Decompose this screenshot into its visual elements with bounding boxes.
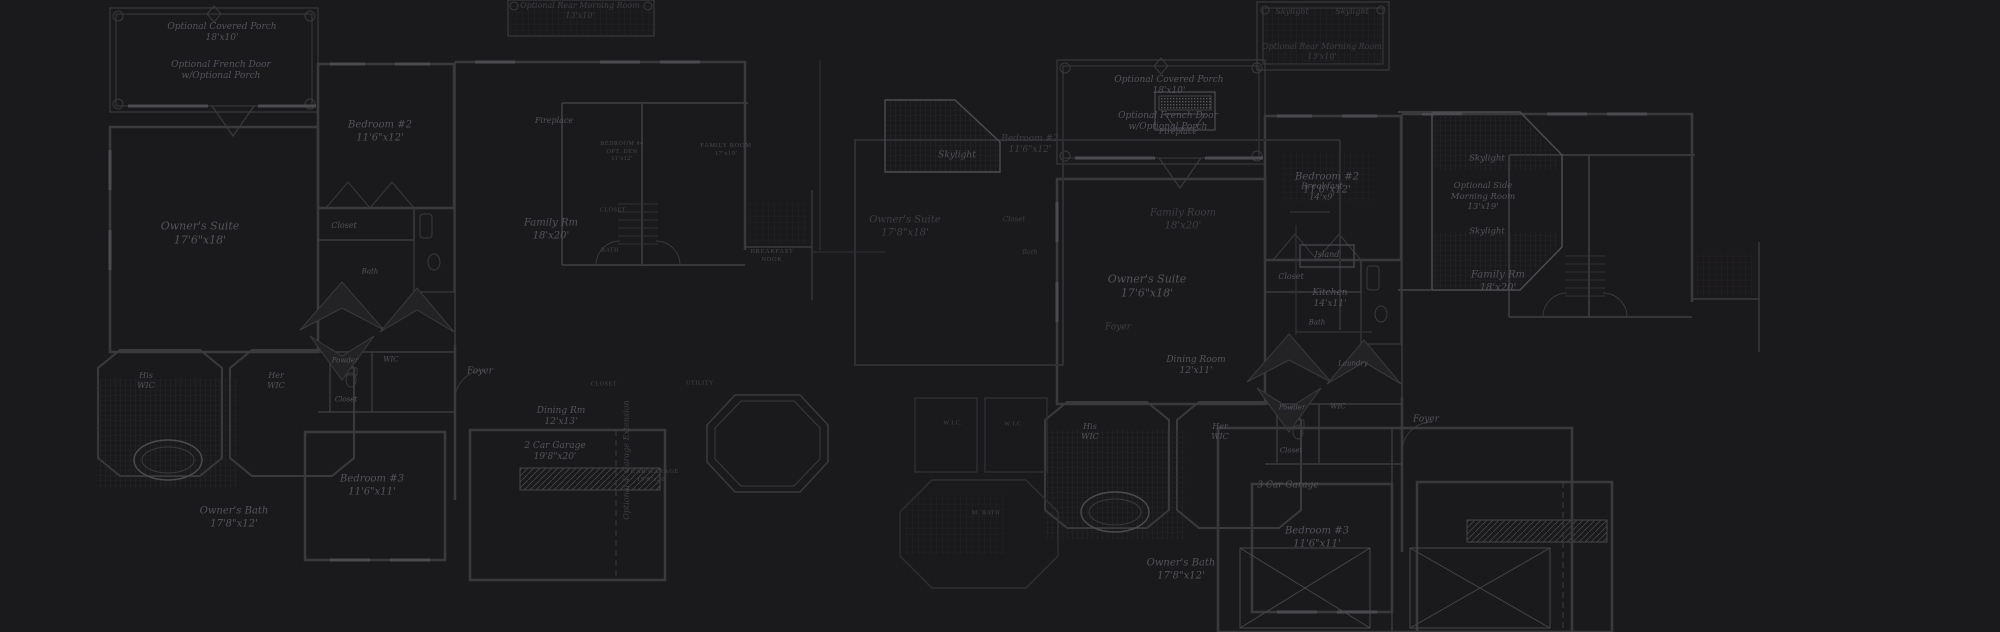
morning-room-side-right (1398, 112, 1562, 290)
fireplace-right-icon (1155, 92, 1215, 130)
den-bay (707, 395, 828, 492)
plan-right (1043, 58, 1759, 632)
skylight-grid-mid (885, 100, 1000, 172)
plan-left (96, 6, 812, 580)
blueprint-linework (0, 0, 2000, 632)
blueprint-collage: Optional Covered Porch18'x10'Optional Fr… (0, 0, 2000, 632)
morning-room-top-center (508, 0, 654, 36)
morning-room-top-right (1257, 2, 1389, 70)
